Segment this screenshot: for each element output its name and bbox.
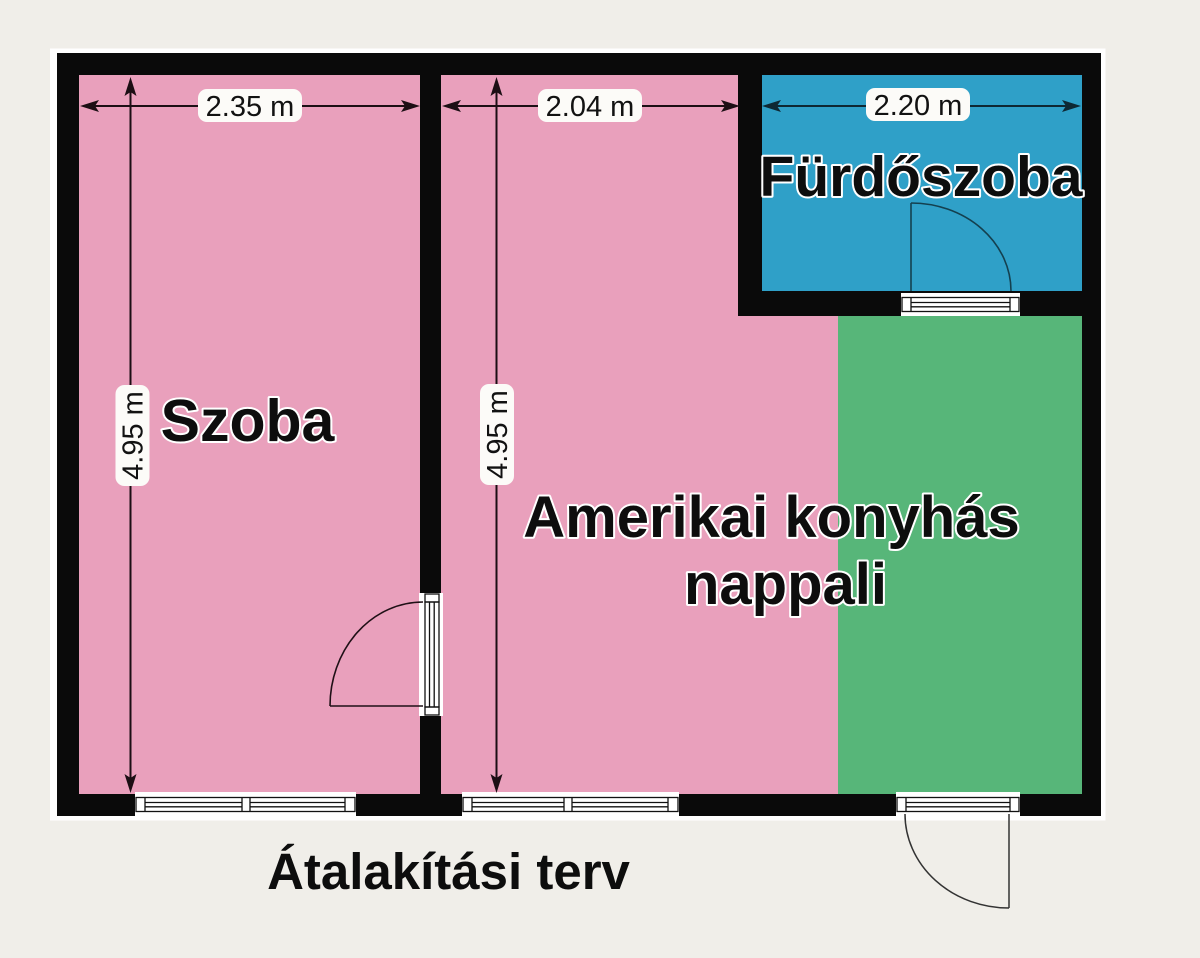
svg-text:Amerikai konyhás: Amerikai konyhás [523, 485, 1019, 550]
svg-text:2.35 m: 2.35 m [206, 91, 295, 123]
svg-text:4.95 m: 4.95 m [482, 390, 514, 479]
svg-text:2.04 m: 2.04 m [546, 91, 635, 123]
svg-text:nappali: nappali [684, 552, 887, 617]
svg-text:4.95 m: 4.95 m [118, 391, 150, 480]
svg-text:Fürdőszoba: Fürdőszoba [760, 145, 1084, 209]
svg-text:Átalakítási terv: Átalakítási terv [267, 843, 630, 900]
svg-text:Szoba: Szoba [161, 388, 336, 454]
svg-text:2.20 m: 2.20 m [874, 90, 963, 122]
